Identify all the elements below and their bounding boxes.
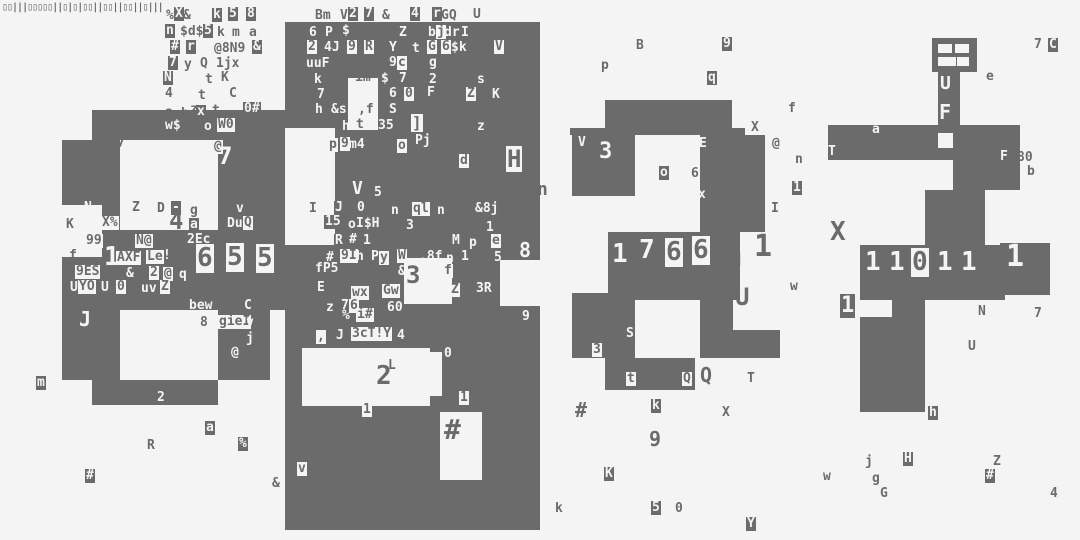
blob-rect <box>92 380 218 405</box>
glyph: G <box>880 487 888 501</box>
glyph: v <box>236 202 244 216</box>
glyph: k <box>212 8 222 22</box>
glyph: 0 <box>675 502 683 516</box>
glyph: i# <box>356 308 374 322</box>
glyph: d <box>459 154 469 168</box>
glyph: GQ <box>441 9 457 23</box>
glyph: 5 <box>651 501 661 515</box>
glyph: 0 <box>404 87 414 101</box>
glyph: K <box>492 88 500 102</box>
glyph: Z <box>450 283 460 297</box>
glyph: m <box>36 376 46 390</box>
glyph: X% <box>101 216 119 230</box>
glyph: q <box>707 71 717 85</box>
glyph: U <box>101 281 109 295</box>
glyph: x <box>196 105 206 119</box>
glyph: Q <box>200 57 208 71</box>
glyph: .8f <box>419 250 442 264</box>
glyph: 7 <box>168 56 178 70</box>
glyph: 0 <box>116 280 126 294</box>
glyph: 4 <box>944 165 952 179</box>
blob-rect <box>570 128 745 135</box>
blob-rect <box>700 297 733 358</box>
glyph: C <box>1048 38 1058 52</box>
glyph: # <box>349 233 357 247</box>
glyph: 3 <box>592 343 602 357</box>
glyph: x <box>698 188 706 202</box>
glyph: 0# <box>243 102 261 116</box>
glyph: 7 <box>1034 38 1042 52</box>
glyph: @ <box>772 137 780 151</box>
glyph: 9ES <box>75 265 100 279</box>
glyph: Q <box>682 372 692 386</box>
glyph: t <box>205 73 213 87</box>
glyph: K <box>221 71 229 85</box>
blob-rect <box>828 125 953 160</box>
glyph: p <box>328 138 338 152</box>
glyph: C <box>229 87 237 101</box>
glyph: h <box>928 406 938 420</box>
glyph: @ <box>231 346 239 360</box>
glyph: V <box>577 136 587 150</box>
glyph: m <box>232 26 240 40</box>
glyph: E <box>699 137 707 151</box>
glyph: K <box>66 218 74 232</box>
glyph: w$ <box>165 119 181 133</box>
glyph: 7 <box>117 137 125 151</box>
glyph: U <box>735 284 749 310</box>
glyph: 4J <box>324 41 340 55</box>
glyph: N <box>978 305 986 319</box>
glyph: h <box>315 103 323 117</box>
glyph: S <box>626 327 634 341</box>
glyph: U <box>70 281 78 295</box>
glyph: 1 <box>1006 240 1024 273</box>
glyph: 1 <box>840 294 855 318</box>
blob-rect <box>925 190 985 250</box>
glyph: V <box>494 40 504 54</box>
glyph: s <box>477 73 485 87</box>
glyph: 4 <box>1050 487 1058 501</box>
glyph: F <box>939 101 951 123</box>
glyph: 4 <box>169 208 183 234</box>
hole-rect <box>938 57 956 66</box>
hole-rect <box>938 44 952 53</box>
glyph: @ <box>174 329 182 343</box>
glyph: Z <box>132 201 140 215</box>
glyph: f <box>788 102 796 116</box>
glyph: ql <box>412 202 430 216</box>
glyph: f <box>69 249 77 263</box>
glyph: o <box>659 166 669 180</box>
glyph: & <box>272 477 280 491</box>
glyph: n <box>795 153 803 167</box>
glyph: y <box>184 58 192 72</box>
glyph: V <box>340 9 348 23</box>
glyph: 5 <box>374 186 382 200</box>
glyph: , <box>316 330 326 344</box>
glyph: 6 <box>692 236 710 265</box>
glyph: t <box>626 372 636 386</box>
glyph: t <box>356 118 364 132</box>
glyph: T <box>747 372 755 386</box>
hole-rect <box>302 348 430 406</box>
glyph: e <box>491 234 501 248</box>
glyph: 0z <box>427 266 443 280</box>
glyph: 1 <box>459 391 469 405</box>
glyph: I$H <box>356 217 379 231</box>
glyph: 9 <box>347 40 357 54</box>
glyph: 1 <box>865 248 881 277</box>
glyph: H <box>506 146 522 172</box>
glyph: ,f <box>358 103 374 117</box>
glyph: w <box>790 280 798 294</box>
glyph: R <box>147 439 155 453</box>
glyph: I <box>309 202 317 216</box>
glyph: C <box>244 299 252 313</box>
glyph: R <box>364 40 374 54</box>
glyph: 60 <box>387 301 403 315</box>
glyph: 1 <box>961 248 977 277</box>
glyph: $ <box>342 24 350 38</box>
glyph: fP5 <box>315 262 338 276</box>
glyph: D <box>157 202 165 216</box>
glyph: k <box>651 399 661 413</box>
glyph: n <box>165 24 175 38</box>
glyph: s <box>181 347 189 361</box>
glyph: 5 <box>228 7 238 21</box>
glyph: &s <box>331 103 347 117</box>
glyph: 1 <box>460 250 470 264</box>
glyph: p <box>469 236 477 250</box>
glyph: z <box>477 120 485 134</box>
glyph: # <box>170 40 180 54</box>
glyph: t <box>412 42 420 56</box>
glyph: w <box>823 470 831 484</box>
glyph: 9 <box>722 37 732 51</box>
glyph: m4 <box>349 138 365 152</box>
glyph: bew <box>189 299 212 313</box>
glyph: q <box>179 268 187 282</box>
glyph: H <box>903 452 913 466</box>
glyph: J <box>336 329 344 343</box>
glyph: J <box>79 308 91 330</box>
glyph: I <box>461 26 469 40</box>
glyph: X <box>830 218 846 247</box>
blob-rect <box>892 300 925 317</box>
glyph: 3R <box>476 282 492 296</box>
glyph: b <box>181 107 189 121</box>
glyph: G <box>427 40 437 54</box>
glyph: uv <box>141 282 157 296</box>
glyph: 6 <box>389 87 397 101</box>
glyph: Gw <box>382 284 400 298</box>
glyph: X <box>751 121 759 135</box>
glyph: 4 <box>165 87 173 101</box>
glyph: 2 <box>307 40 317 54</box>
glyph: 5 <box>494 251 502 265</box>
glyph: # <box>575 399 587 421</box>
glyph: 3 <box>405 262 421 288</box>
glyph: 7 <box>639 236 655 265</box>
glyph: Z <box>399 26 407 40</box>
glyph: Du <box>227 217 243 231</box>
glyph: Z <box>993 455 1001 469</box>
blob-rect <box>730 330 780 358</box>
glyph: h <box>342 120 350 134</box>
glyph: 0 <box>444 347 452 361</box>
glyph: # <box>85 469 95 483</box>
glyph: 0 <box>357 201 365 215</box>
glyph: b <box>236 119 244 133</box>
glyph: B <box>636 39 644 53</box>
glyph: Q <box>700 364 712 386</box>
glyph: YO <box>78 280 96 294</box>
glyph: N <box>84 201 92 215</box>
glyph: 1 <box>937 248 953 277</box>
glyph: & <box>252 40 262 54</box>
glyph: F <box>1000 150 1008 164</box>
glyph: & <box>382 9 390 23</box>
glyph: Bm <box>315 9 331 23</box>
glyph: 8 <box>246 7 256 21</box>
glyph: 7 <box>218 143 232 169</box>
glyph: S <box>389 103 397 117</box>
glyph: 9I <box>340 249 358 263</box>
glyph: P <box>325 26 333 40</box>
glyph: Le <box>146 250 164 264</box>
glyph: 15 <box>324 215 342 229</box>
glyph: k <box>217 26 225 40</box>
glyph: 4 <box>410 7 420 21</box>
glyph: 7 <box>1034 307 1042 321</box>
glyph: 6 <box>665 238 683 267</box>
glyph: t <box>198 89 206 103</box>
glyph: U <box>940 74 951 94</box>
blob-rect <box>953 125 1020 190</box>
glyph: T <box>828 145 836 159</box>
binary-header: ▯▯|||▯▯▯▯▯||▯|▯|▯▯||▯▯||▯▯||▯||| <box>2 3 163 13</box>
hole-rect <box>957 57 969 66</box>
glyph: p <box>172 139 180 153</box>
glyph: n <box>391 204 399 218</box>
glyph: # <box>444 415 461 446</box>
glyph: 5 <box>226 243 244 272</box>
glyph: N@ <box>135 234 153 248</box>
glyph: 0 <box>911 248 929 277</box>
glyph: j <box>246 332 254 346</box>
glyph: p <box>601 59 609 73</box>
glyph: & <box>126 267 134 281</box>
glyph: 5 <box>256 244 274 273</box>
glyph: $ <box>381 72 389 86</box>
glyph: % <box>166 9 174 23</box>
glyph: 2 <box>149 266 159 280</box>
glyph: Y <box>389 41 397 55</box>
glyph: 5 <box>203 24 213 38</box>
glyph: R <box>334 234 344 248</box>
glyph: 1 <box>754 230 772 263</box>
glyph: % <box>342 309 350 323</box>
glyph: @8N9 <box>214 42 245 56</box>
glyph: Y <box>746 517 756 531</box>
glyph: uuF <box>306 57 329 71</box>
glyph: &8j <box>475 202 498 216</box>
glyph: g <box>872 472 880 486</box>
glyph: 7 <box>399 72 407 86</box>
glyph: Q <box>243 216 253 230</box>
glyph: a <box>205 421 215 435</box>
glyph: g <box>429 56 437 70</box>
glyph: v <box>246 316 254 330</box>
glyph: o <box>204 120 212 134</box>
glyph: U <box>968 340 976 354</box>
glyph: X <box>722 406 730 420</box>
glyph: b <box>1027 165 1035 179</box>
glyph: 1 <box>889 248 905 277</box>
glyph: W0 <box>217 118 235 132</box>
glyph: 9 <box>389 56 397 70</box>
glyph: 2 <box>376 362 392 391</box>
glyph: ! <box>163 249 171 263</box>
glyph: AXF <box>116 251 141 265</box>
glyph: & <box>183 9 191 23</box>
glyph: P <box>371 250 379 264</box>
blob-rect <box>700 135 765 232</box>
glyph: F <box>427 86 435 100</box>
glyph: y <box>379 251 389 265</box>
glyph: k <box>555 502 563 516</box>
glyph: a <box>189 218 199 232</box>
glyph: 4 <box>397 329 405 343</box>
glyph: 6 <box>441 40 451 54</box>
glyph: r <box>186 40 196 54</box>
glyph: 6 <box>196 244 214 273</box>
hole-rect <box>418 352 442 396</box>
glyph: ] <box>411 114 423 132</box>
glyph: 3 <box>599 140 612 164</box>
blob-rect <box>860 317 925 412</box>
glyph: E <box>316 281 326 295</box>
glyph: 9 <box>522 310 530 324</box>
glyph: ◢ <box>727 247 740 271</box>
glyph: 6 <box>691 167 699 181</box>
glyph: o <box>397 139 407 153</box>
blob-rect <box>860 245 1005 300</box>
glyph: im <box>355 71 371 85</box>
glyph: K <box>604 467 614 481</box>
glyph: 1 <box>612 240 628 269</box>
glyph: a <box>872 123 880 137</box>
glyph: 1 <box>509 261 525 290</box>
glyph: 1 <box>792 181 802 195</box>
glyph: 8 <box>519 239 531 261</box>
hole-rect <box>938 133 953 148</box>
glyph: U <box>473 8 481 22</box>
glyph: n <box>437 204 445 218</box>
glyph: $d$ <box>180 25 203 39</box>
glyph: 1 <box>363 234 371 248</box>
ascii-art-canvas: ▯▯|||▯▯▯▯▯||▯|▯|▯▯||▯▯||▯▯||▯||| %X&k58n… <box>0 0 1080 540</box>
glyph: v <box>297 462 307 476</box>
glyph: j <box>865 455 873 469</box>
glyph: $k <box>451 41 467 55</box>
glyph: k <box>314 73 322 87</box>
glyph: c <box>397 56 407 70</box>
glyph: Z <box>466 87 476 101</box>
glyph: # <box>985 469 995 483</box>
glyph: V <box>352 179 363 199</box>
glyph: N <box>163 71 173 85</box>
glyph: 2 <box>348 7 358 21</box>
glyph: h <box>356 250 364 264</box>
glyph: n <box>537 180 548 200</box>
glyph: M <box>452 234 460 248</box>
glyph: 1 <box>362 403 372 417</box>
glyph: 9 <box>649 428 661 450</box>
glyph: 7 <box>364 7 374 21</box>
glyph: 35 <box>378 119 394 133</box>
glyph: 2 <box>157 391 165 405</box>
hole-rect <box>955 44 969 53</box>
glyph: 3 <box>196 329 204 343</box>
glyph: e <box>986 70 994 84</box>
glyph: z <box>326 301 334 315</box>
glyph: 3 <box>406 219 414 233</box>
glyph: I <box>771 202 779 216</box>
glyph: Z <box>160 280 170 294</box>
glyph: % <box>238 437 248 451</box>
glyph: 3cT!Y <box>351 327 392 341</box>
glyph: 99 <box>85 234 103 248</box>
glyph: 7 <box>317 88 325 102</box>
glyph: Pj <box>415 134 431 148</box>
glyph: f <box>443 264 453 278</box>
